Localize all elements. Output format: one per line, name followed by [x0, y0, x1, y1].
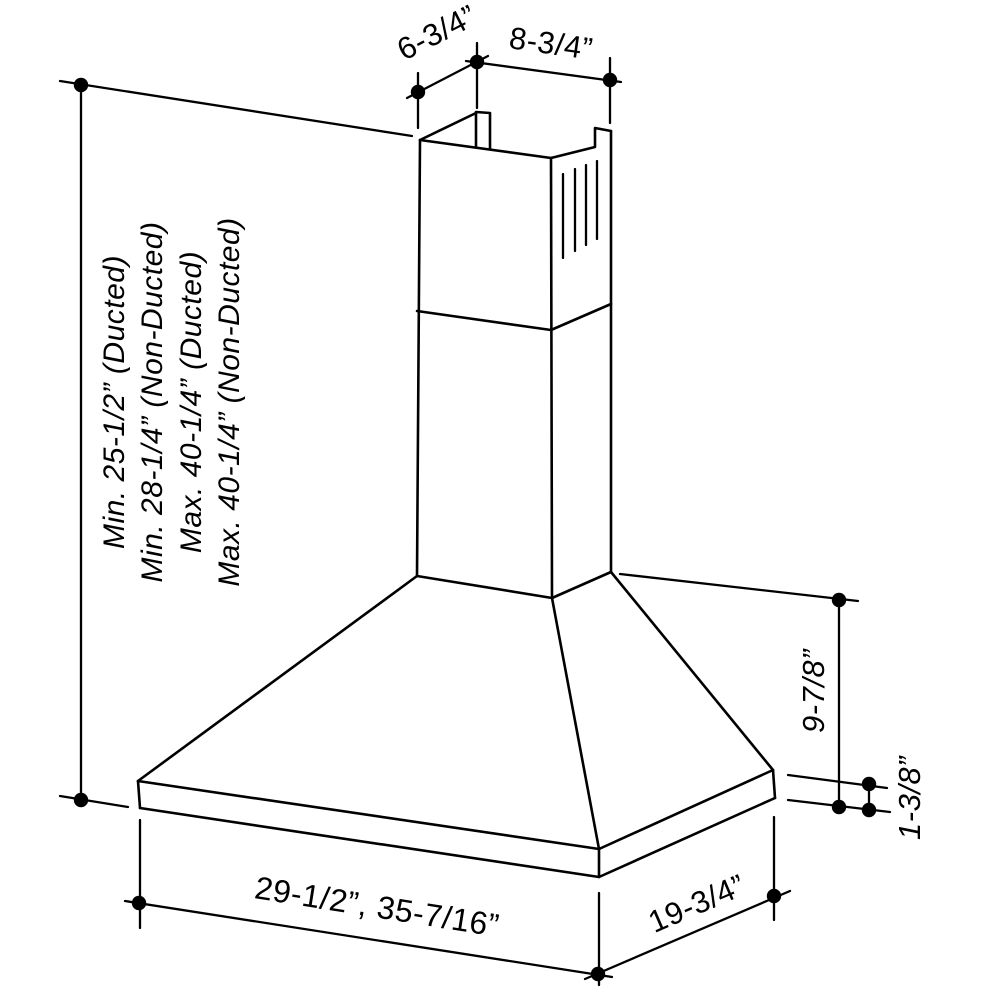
- chimney-mount-tab: [476, 112, 490, 149]
- chimney-telescoping-seam: [417, 304, 611, 330]
- dim-label-height-max-nonducted: Max. 40-1/4” (Non-Ducted): [213, 217, 247, 586]
- height-bottom-extension: [60, 796, 128, 807]
- vent-slats: [563, 161, 597, 258]
- canopy-right-back-edge: [611, 572, 773, 770]
- dim-label-height-min-ducted: Min. 25-1/2” (Ducted): [98, 255, 132, 549]
- dim-label-height-max-ducted: Max. 40-1/4” (Ducted): [175, 251, 209, 553]
- canopy-front-ridge: [552, 598, 599, 849]
- canopy-left-slope-edge: [138, 576, 417, 781]
- diagram-canvas: 6-3/4” 8-3/4” Min. 25-1/2” (Ducted) Min.…: [0, 0, 1000, 1000]
- chimney-right-top-edge: [551, 128, 611, 158]
- chimney-front-top-edge: [420, 140, 551, 158]
- chimney-canopy-junction: [417, 572, 611, 598]
- base-lip-bottom-edge: [140, 798, 775, 877]
- base-lip-top-edge: [138, 770, 773, 849]
- dim-label-height-min-nonducted: Min. 28-1/4” (Non-Ducted): [136, 222, 170, 583]
- chimney-width-dim-line: [466, 61, 621, 82]
- base-lip-corner-edges: [138, 770, 775, 877]
- height-top-extension: [60, 81, 412, 136]
- chimney-back-left-edge: [420, 113, 476, 140]
- chimney-front-corner-edge: [551, 158, 552, 598]
- chimney-left-edge: [417, 140, 420, 576]
- hood-height-top-extension: [620, 574, 858, 601]
- dim-label-lip-height: 1-3/8”: [892, 756, 928, 840]
- dim-label-hood-height: 9-7/8”: [796, 649, 832, 733]
